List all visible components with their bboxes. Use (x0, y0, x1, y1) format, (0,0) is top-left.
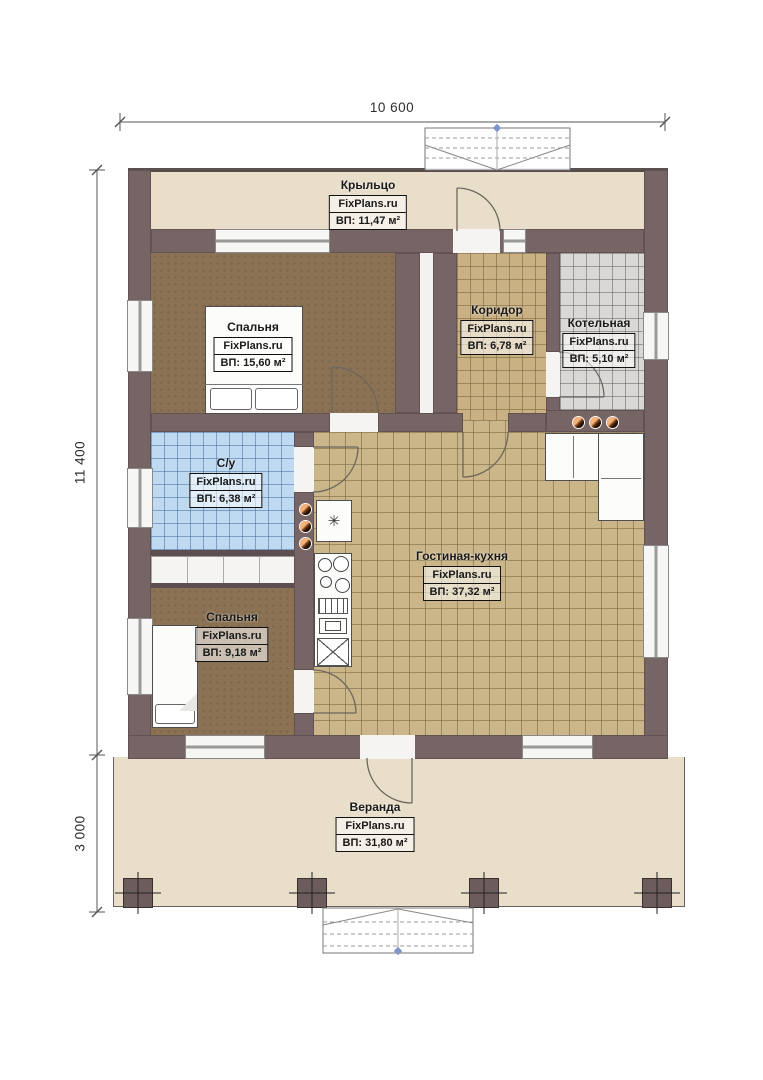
porch-area: ВП: 11,47 м² (330, 213, 406, 229)
wall-bathroom-right-a (294, 432, 314, 447)
corridor-name: Коридор (460, 303, 533, 317)
window-bedroom1-top (215, 229, 330, 253)
bed-double-line (205, 384, 303, 385)
brand-watermark: FixPlans.ru (337, 818, 414, 835)
wall-bedroom1-right (395, 253, 420, 413)
brand-watermark: FixPlans.ru (190, 474, 261, 491)
veranda-area: ВП: 31,80 м² (337, 835, 414, 851)
dimension-top-label: 10 600 (370, 100, 414, 115)
pillow-right (255, 388, 298, 410)
cabinet-inner (325, 621, 341, 631)
window-bedroom2-left (127, 618, 153, 695)
wall-spot-3 (300, 538, 311, 549)
wall-mid-right (508, 413, 546, 432)
wall-right-outer (644, 170, 668, 758)
dimension-line-veranda (89, 755, 105, 917)
column-4 (642, 878, 672, 908)
bathroom-name: С/у (189, 456, 262, 470)
hallway-floor (151, 556, 294, 584)
room-label-bedroom1: Спальня FixPlans.ru ВП: 15,60 м² (214, 320, 293, 372)
column-1 (123, 878, 153, 908)
entry-door-opening (453, 229, 500, 253)
dimension-left-label: 11 400 (73, 435, 88, 491)
wall-spot-6 (607, 417, 618, 428)
wall-corridor-right-upper (546, 253, 560, 352)
room-label-living: Гостиная-кухня FixPlans.ru ВП: 37,32 м² (416, 549, 508, 601)
room-label-corridor: Коридор FixPlans.ru ВП: 6,78 м² (460, 303, 533, 355)
appliance-box (317, 638, 349, 666)
window-bathroom-left (127, 468, 153, 528)
bathroom-area: ВП: 6,38 м² (190, 491, 261, 507)
fridge-snowflake: ✳ (328, 512, 341, 530)
boiler-door-opening (546, 352, 560, 397)
column-2 (297, 878, 327, 908)
corridor-area: ВП: 6,78 м² (461, 338, 532, 354)
wall-corridor-left (433, 253, 457, 413)
veranda-door-opening (360, 735, 415, 759)
wall-bathroom-bottom (151, 550, 294, 556)
boiler-area: ВП: 5,10 м² (563, 351, 634, 367)
pillow-left (210, 388, 252, 410)
brand-watermark: FixPlans.ru (563, 334, 634, 351)
wall-spot-5 (590, 417, 601, 428)
dimension-line-left (89, 165, 105, 760)
hob-burner-2 (335, 578, 350, 593)
window-bedroom1-left (127, 300, 153, 372)
bedroom1-door-opening (330, 413, 378, 432)
window-boiler-right (643, 312, 669, 360)
boiler-name: Котельная (562, 316, 635, 330)
sink-bowl-2 (333, 556, 349, 572)
room-label-veranda: Веранда FixPlans.ru ВП: 31,80 м² (336, 800, 415, 852)
sofa-seam-h (601, 478, 641, 479)
hob-burner-1 (320, 576, 332, 588)
stairs-bottom (323, 908, 473, 955)
wall-mid-left (151, 413, 330, 432)
sink-bowl-1 (318, 558, 332, 572)
wall-spot-4 (573, 417, 584, 428)
dish-rack (318, 598, 348, 614)
window-bedroom2-bottom (185, 735, 265, 759)
window-porch-small (503, 229, 526, 253)
bedroom2-door-opening (294, 670, 314, 713)
window-living-right (643, 545, 669, 658)
bedroom1-name: Спальня (214, 320, 293, 334)
room-label-bedroom2: Спальня FixPlans.ru ВП: 9,18 м² (195, 610, 268, 662)
veranda-name: Веранда (336, 800, 415, 814)
bedroom2-area: ВП: 9,18 м² (196, 645, 267, 661)
porch-name: Крыльцо (329, 178, 407, 192)
bedroom2-name: Спальня (195, 610, 268, 624)
wall-bathroom-right-b (294, 492, 314, 670)
wall-spot-2 (300, 521, 311, 532)
room-label-bathroom: С/у FixPlans.ru ВП: 6,38 м² (189, 456, 262, 508)
living-area: ВП: 37,32 м² (424, 584, 501, 600)
floor-plan: ✳ (0, 0, 763, 1080)
fridge-icon: ✳ (316, 500, 352, 542)
brand-watermark: FixPlans.ru (196, 628, 267, 645)
stairs-top (425, 124, 570, 170)
living-name: Гостиная-кухня (416, 549, 508, 563)
wall-spot-1 (300, 504, 311, 515)
bedroom1-area: ВП: 15,60 м² (215, 355, 292, 371)
room-label-boiler: Котельная FixPlans.ru ВП: 5,10 м² (562, 316, 635, 368)
wall-mid-center (378, 413, 463, 432)
dimension-veranda-label: 3 000 (73, 806, 88, 862)
sofa-seam-v (573, 436, 574, 478)
bathroom-door-opening (294, 447, 314, 492)
wall-bedroom2-top (151, 583, 294, 588)
wall-bedroom2-right (294, 713, 314, 736)
column-3 (469, 878, 499, 908)
brand-watermark: FixPlans.ru (330, 196, 406, 213)
brand-watermark: FixPlans.ru (424, 567, 501, 584)
sofa-right-section (598, 433, 644, 521)
dimension-line-top (115, 113, 670, 131)
room-label-porch: Крыльцо FixPlans.ru ВП: 11,47 м² (329, 178, 407, 230)
window-living-bottom (522, 735, 593, 759)
brand-watermark: FixPlans.ru (215, 338, 292, 355)
brand-watermark: FixPlans.ru (461, 321, 532, 338)
